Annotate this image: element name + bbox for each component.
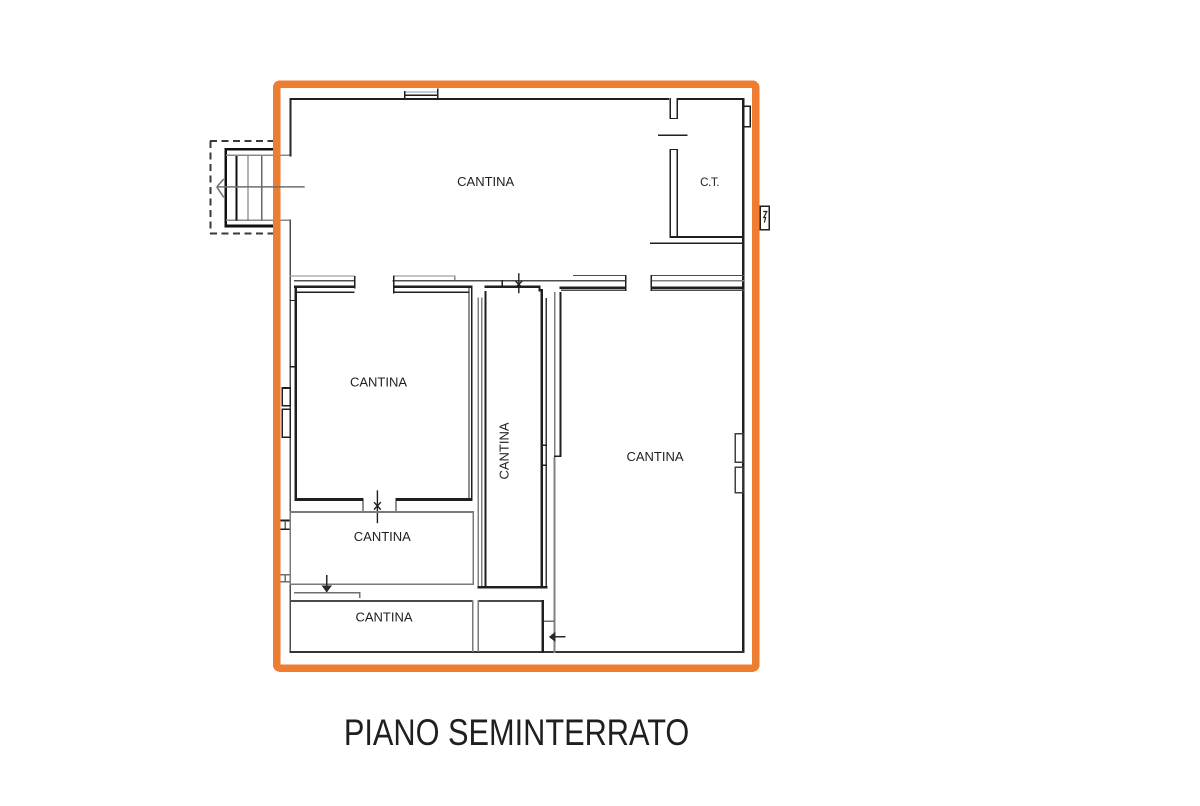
- svg-text:CANTINA: CANTINA: [354, 529, 411, 544]
- svg-text:CANTINA: CANTINA: [350, 374, 407, 389]
- svg-text:CANTINA: CANTINA: [457, 174, 514, 189]
- svg-text:CANTINA: CANTINA: [355, 610, 412, 625]
- svg-text:PIANO SEMINTERRATO: PIANO SEMINTERRATO: [344, 712, 689, 753]
- svg-text:C.T.: C.T.: [700, 176, 719, 189]
- svg-text:CANTINA: CANTINA: [497, 422, 512, 479]
- svg-text:CANTINA: CANTINA: [626, 449, 683, 464]
